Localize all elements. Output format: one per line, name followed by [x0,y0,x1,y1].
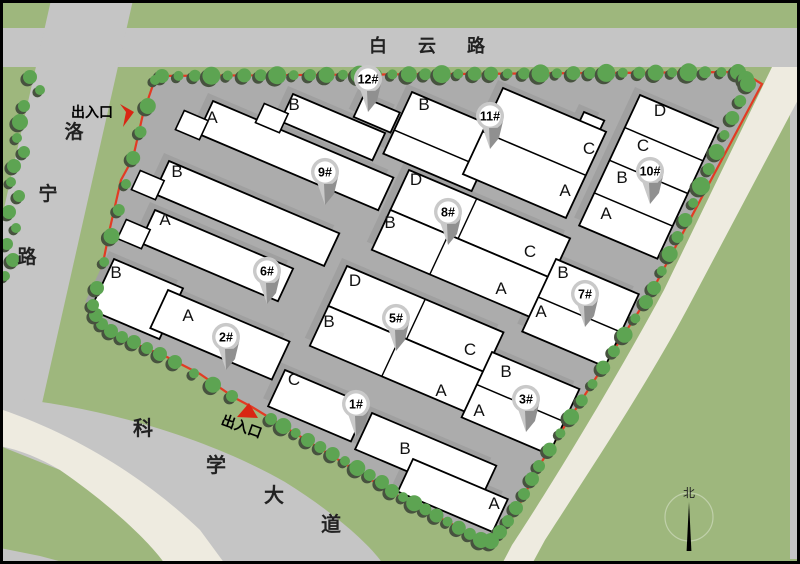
svg-text:出入口: 出入口 [71,104,113,120]
svg-text:A: A [473,401,485,420]
svg-text:7#: 7# [578,288,592,302]
svg-text:A: A [206,108,218,127]
svg-text:1#: 1# [349,398,363,412]
svg-text:A: A [535,302,547,321]
svg-text:A: A [435,381,447,400]
svg-text:云: 云 [418,36,436,56]
svg-text:大: 大 [264,484,284,507]
svg-text:C: C [464,340,476,359]
svg-text:B: B [557,263,568,282]
svg-text:C: C [288,370,300,389]
svg-text:A: A [495,279,507,298]
svg-text:学: 学 [206,453,226,477]
svg-text:5#: 5# [389,312,403,326]
svg-text:D: D [349,271,361,290]
svg-text:12#: 12# [358,73,379,87]
svg-text:道: 道 [321,512,341,536]
svg-text:6#: 6# [260,265,274,279]
svg-text:A: A [182,306,194,325]
svg-text:A: A [488,494,500,513]
svg-text:3#: 3# [519,393,533,407]
svg-text:C: C [524,242,536,261]
svg-text:洛: 洛 [64,120,84,143]
svg-text:10#: 10# [640,165,661,179]
svg-text:B: B [171,162,182,181]
svg-text:A: A [159,210,171,229]
svg-text:宁: 宁 [38,182,57,205]
svg-text:11#: 11# [480,110,500,124]
svg-text:A: A [600,204,612,223]
svg-text:B: B [384,213,395,232]
svg-text:9#: 9# [318,166,332,180]
svg-text:B: B [399,439,410,458]
svg-text:路: 路 [467,35,486,56]
svg-text:白: 白 [369,35,387,56]
svg-text:B: B [323,312,334,331]
svg-text:B: B [288,95,299,114]
svg-text:B: B [110,263,121,282]
svg-text:C: C [583,139,595,158]
svg-text:D: D [654,101,666,120]
svg-text:路: 路 [17,245,37,268]
svg-text:B: B [500,362,511,381]
svg-text:8#: 8# [441,206,455,220]
svg-text:D: D [410,170,422,189]
svg-text:A: A [559,181,571,200]
svg-text:科: 科 [133,416,153,440]
svg-text:C: C [637,136,649,155]
svg-text:2#: 2# [219,331,233,345]
svg-text:B: B [418,95,429,114]
svg-text:北: 北 [683,486,695,500]
svg-text:B: B [616,168,627,187]
